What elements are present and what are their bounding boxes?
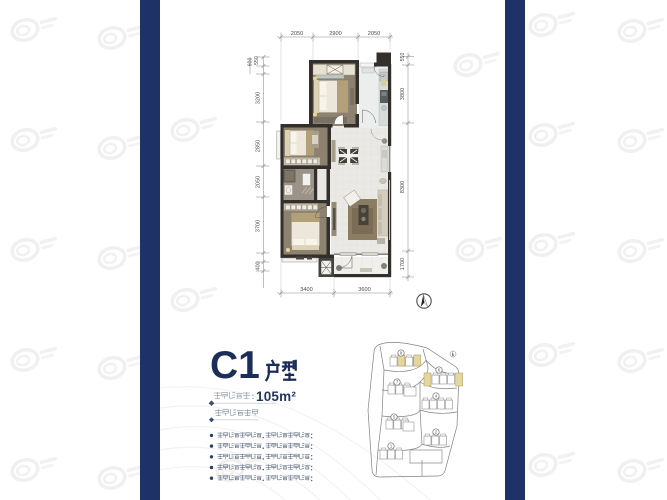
svg-text::: : bbox=[251, 391, 254, 401]
